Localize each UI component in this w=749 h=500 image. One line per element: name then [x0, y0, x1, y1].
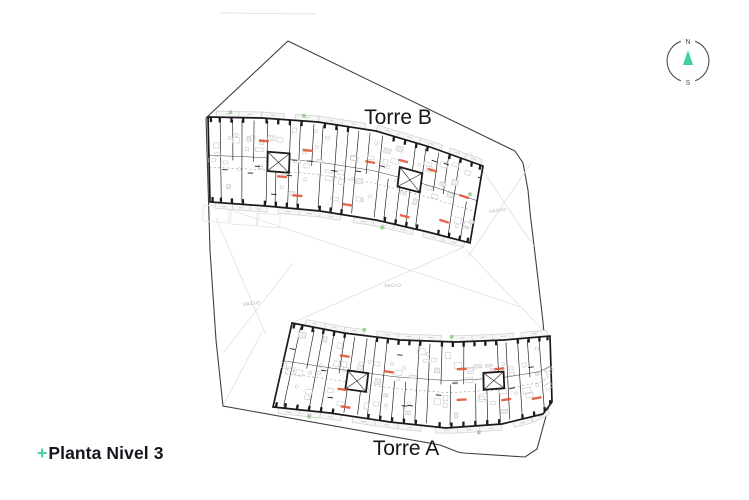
- compass-needle-icon: [683, 50, 693, 65]
- tower-b-title: Torre B: [364, 106, 432, 129]
- plus-icon: +: [37, 443, 47, 463]
- compass-ring-right: [695, 41, 709, 80]
- tower-a-floor-plan: [273, 320, 554, 435]
- floor-plan-canvas: VACIO VACIO VACIO Torre B Torre A N S: [0, 0, 749, 500]
- plan-level-title: +Planta Nivel 3: [37, 443, 164, 464]
- tower-b-floor-plan: [208, 110, 483, 247]
- site-plan-page: VACIO VACIO VACIO Torre B Torre A N S +P…: [0, 0, 749, 500]
- plan-level-title-text: Planta Nivel 3: [48, 443, 163, 463]
- tower-a-title: Torre A: [373, 437, 440, 460]
- compass-south-label: S: [686, 80, 691, 87]
- void-label-left: VACIO: [243, 300, 261, 307]
- compass-north-label: N: [685, 39, 690, 46]
- void-label-center: VACIO: [384, 283, 402, 289]
- compass-icon: N S: [667, 39, 709, 87]
- compass-ring-left: [667, 41, 681, 80]
- neighbor-parcel-line: [219, 13, 316, 14]
